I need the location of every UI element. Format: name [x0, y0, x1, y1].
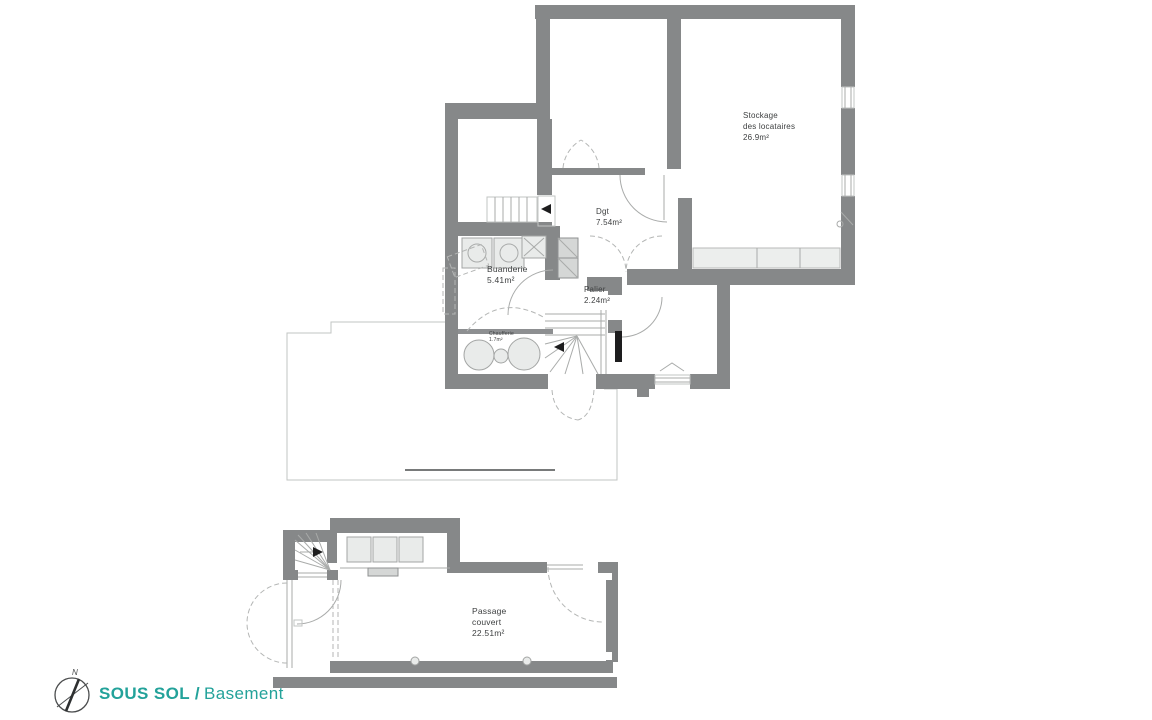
door-panel	[615, 331, 622, 362]
room-name: Stockage	[743, 110, 795, 121]
room-area: 5.41m²	[487, 275, 528, 286]
stair-direction-arrow-icon	[541, 204, 551, 214]
passage-plan-walls	[273, 518, 618, 688]
room-label-stockage: Stockage des locataires 26.9m²	[743, 110, 795, 143]
room-name: Buanderie	[487, 264, 528, 275]
room-area: 2.24m²	[584, 295, 610, 306]
room-area: 22.51m²	[472, 628, 506, 639]
title-french: SOUS SOL /	[99, 684, 200, 703]
compass-north-label: N	[72, 668, 78, 677]
room-area: 7.54m²	[596, 217, 622, 228]
room-name: Palier	[584, 284, 610, 295]
room-name: des locataires	[743, 121, 795, 132]
room-label-palier: Palier 2.24m²	[584, 284, 610, 306]
floor-plan-drawing	[0, 0, 1152, 720]
room-name: couvert	[472, 617, 506, 628]
title-english: Basement	[204, 684, 284, 703]
post-icon	[523, 657, 531, 665]
room-area: 26.9m²	[743, 132, 795, 143]
post-icon	[411, 657, 419, 665]
room-label-buanderie: Buanderie 5.41m²	[487, 264, 528, 286]
page-title: SOUS SOL /Basement	[99, 684, 284, 704]
room-name: Dgt	[596, 206, 622, 217]
passage-windows-doors	[247, 565, 603, 668]
dgt-cabinets	[558, 238, 578, 278]
room-name: Passage	[472, 606, 506, 617]
room-label-passage: Passage couvert 22.51m²	[472, 606, 506, 639]
floor-plan-page: Stockage des locataires 26.9m² Dgt 7.54m…	[0, 0, 1152, 720]
straight-stairs	[487, 196, 555, 226]
storage-shelving	[693, 248, 840, 268]
room-label-chaufferie: Chaufferie 1.7m²	[489, 331, 514, 343]
passage-storage-boxes	[340, 537, 450, 576]
winder-stairs	[545, 310, 606, 420]
room-area: 1.7m²	[489, 337, 514, 343]
room-label-dgt: Dgt 7.54m²	[596, 206, 622, 228]
compass-icon	[55, 678, 89, 712]
